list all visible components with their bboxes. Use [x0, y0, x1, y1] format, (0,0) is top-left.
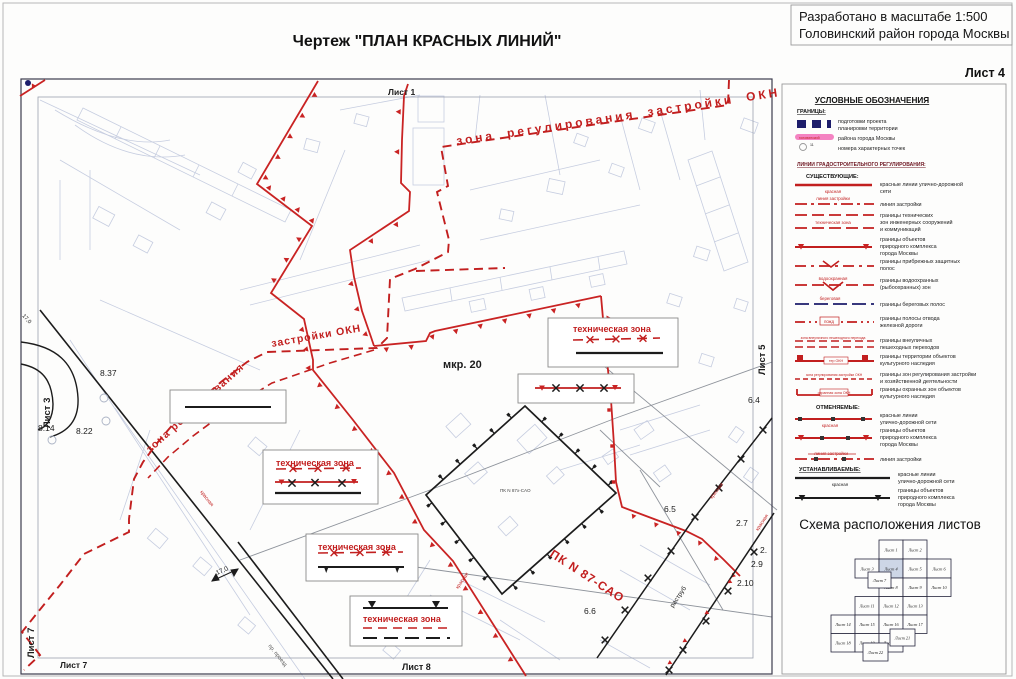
svg-text:границы технических: границы технических [880, 213, 933, 219]
svg-text:Лист 2: Лист 2 [907, 547, 922, 552]
svg-text:УСЛОВНЫЕ ОБОЗНАЧЕНИЯ: УСЛОВНЫЕ ОБОЗНАЧЕНИЯ [815, 96, 929, 105]
svg-text:границы объектов: границы объектов [898, 488, 944, 494]
svg-text:Лист 4: Лист 4 [883, 566, 898, 571]
svg-text:города Москвы: города Москвы [898, 502, 936, 508]
svg-text:Лист 1: Лист 1 [883, 547, 897, 552]
svg-text:границы внеуличных: границы внеуличных [880, 338, 933, 344]
svg-text:зона регулирования застройки О: зона регулирования застройки ОКН [806, 373, 863, 377]
svg-text:города Москвы: города Москвы [880, 251, 918, 257]
svg-text:зона внеуличного пешеходного п: зона внеуличного пешеходного перехода [801, 336, 866, 340]
svg-text:Лист 13: Лист 13 [906, 604, 922, 609]
svg-text:границы водоохранных: границы водоохранных [880, 278, 939, 284]
svg-text:Лист 3: Лист 3 [859, 566, 873, 571]
svg-text:границы зон регулирования заст: границы зон регулирования застройки [880, 371, 976, 378]
svg-text:зон инженерных сооружений: зон инженерных сооружений [880, 219, 953, 226]
svg-text:головинский: головинский [799, 136, 820, 140]
svg-text:2.9: 2.9 [751, 559, 763, 569]
svg-text:2.7: 2.7 [736, 518, 748, 528]
svg-text:Лист 15: Лист 15 [858, 622, 875, 627]
svg-text:и хозяйственной деятельности: и хозяйственной деятельности [880, 378, 957, 385]
svg-text:Лист 3: Лист 3 [42, 398, 53, 428]
svg-text:ОТМЕНЯЕМЫЕ:: ОТМЕНЯЕМЫЕ: [816, 405, 860, 411]
svg-text:Лист 8: Лист 8 [402, 662, 431, 672]
svg-text:береговая: береговая [820, 296, 841, 301]
svg-text:красная: красная [822, 423, 839, 428]
svg-text:6.4: 6.4 [748, 395, 760, 405]
svg-text:8.37: 8.37 [100, 368, 117, 378]
svg-text:улично-дорожной сети: улично-дорожной сети [880, 419, 936, 426]
svg-text:подготовки проекта: подготовки проекта [838, 119, 887, 125]
svg-text:СУЩЕСТВУЮЩИЕ:: СУЩЕСТВУЮЩИЕ: [806, 174, 859, 180]
svg-text:границы охранных зон объектов: границы охранных зон объектов [880, 387, 961, 393]
svg-text:планировки территории: планировки территории [838, 126, 898, 132]
svg-text:Лист 14: Лист 14 [834, 622, 851, 627]
svg-text:Лист 6: Лист 6 [931, 566, 946, 571]
svg-text:красные линии: красные линии [880, 413, 918, 419]
svg-text:Лист 18: Лист 18 [834, 641, 851, 646]
svg-text:мкр. 20: мкр. 20 [443, 359, 482, 371]
svg-text:красные линии улично-дорожной: красные линии улично-дорожной [880, 181, 963, 188]
svg-text:Разработано в масштабе 1:500: Разработано в масштабе 1:500 [799, 9, 988, 24]
svg-text:района города Москвы: района города Москвы [838, 135, 895, 142]
svg-text:11: 11 [810, 143, 814, 147]
svg-text:6.6: 6.6 [584, 606, 596, 616]
svg-text:техническая зона: техническая зона [573, 324, 652, 334]
svg-text:улично-дорожной сети: улично-дорожной сети [898, 478, 954, 485]
svg-text:границы территории объектов: границы территории объектов [880, 354, 956, 360]
svg-text:пожд: пожд [824, 319, 834, 324]
svg-text:границы береговых полос: границы береговых полос [880, 302, 945, 308]
svg-text:границы полосы отвода: границы полосы отвода [880, 316, 940, 322]
svg-text:ПК N 87х-САО: ПК N 87х-САО [500, 488, 531, 493]
svg-text:охранная зона ОКН: охранная зона ОКН [818, 391, 851, 395]
svg-text:линия застройки: линия застройки [880, 456, 922, 463]
svg-text:тер ОКН: тер ОКН [829, 359, 843, 363]
svg-text:Лист 21: Лист 21 [894, 635, 910, 640]
svg-text:Лист 22: Лист 22 [867, 650, 884, 655]
svg-text:Лист 4: Лист 4 [965, 66, 1005, 80]
svg-text:Лист 5: Лист 5 [757, 344, 768, 375]
svg-text:железной дороги: железной дороги [880, 322, 923, 329]
svg-text:Лист 7: Лист 7 [872, 578, 887, 583]
svg-text:природного комплекса: природного комплекса [880, 435, 937, 441]
svg-text:2.10: 2.10 [737, 578, 754, 588]
svg-text:границы объектов: границы объектов [880, 428, 926, 434]
svg-text:Чертеж "ПЛАН КРАСНЫХ ЛИНИЙ": Чертеж "ПЛАН КРАСНЫХ ЛИНИЙ" [293, 31, 562, 50]
svg-text:2.: 2. [760, 545, 767, 555]
svg-text:границы прибрежных защитных: границы прибрежных защитных [880, 259, 960, 265]
svg-text:культурного наследия: культурного наследия [880, 394, 935, 400]
svg-text:Лист 11: Лист 11 [858, 604, 874, 609]
svg-text:техническая зона: техническая зона [363, 614, 442, 624]
svg-text:6.5: 6.5 [664, 504, 676, 514]
svg-text:Лист 7: Лист 7 [26, 628, 37, 658]
svg-text:техническая зона: техническая зона [815, 220, 851, 225]
svg-text:природного комплекса: природного комплекса [898, 495, 955, 501]
svg-text:полос: полос [880, 266, 895, 272]
svg-text:номера характерных точек: номера характерных точек [838, 146, 906, 152]
svg-text:Лист 1: Лист 1 [388, 87, 415, 97]
svg-text:природного комплекса: природного комплекса [880, 244, 937, 250]
svg-text:ЛИНИИ ГРАДОСТРОИТЕЛЬНОГО РЕГУЛ: ЛИНИИ ГРАДОСТРОИТЕЛЬНОГО РЕГУЛИРОВАНИЯ: [797, 162, 926, 168]
svg-text:сети: сети [880, 189, 891, 195]
svg-text:Лист 17: Лист 17 [906, 622, 923, 627]
svg-text:красная: красная [825, 189, 842, 194]
svg-text:культурного наследия: культурного наследия [880, 361, 935, 367]
svg-text:Лист 5: Лист 5 [907, 566, 922, 571]
svg-text:ГРАНИЦЫ:: ГРАНИЦЫ: [797, 109, 826, 115]
svg-text:пешеходных переходов: пешеходных переходов [880, 345, 939, 351]
svg-text:8.22: 8.22 [76, 426, 93, 436]
svg-text:Лист 12: Лист 12 [882, 604, 899, 609]
svg-text:водоохранная: водоохранная [819, 276, 848, 281]
svg-text:линия застройки: линия застройки [814, 451, 848, 456]
svg-text:Лист 7: Лист 7 [60, 660, 87, 670]
svg-text:границы объектов: границы объектов [880, 237, 926, 243]
svg-text:линия застройки: линия застройки [816, 196, 850, 201]
svg-text:(рыбоохранных) зон: (рыбоохранных) зон [880, 285, 931, 291]
svg-text:и коммуникаций: и коммуникаций [880, 226, 921, 233]
svg-text:Лист 16: Лист 16 [882, 622, 899, 627]
svg-text:линия застройки: линия застройки [880, 201, 922, 208]
svg-text:города Москвы: города Москвы [880, 442, 918, 448]
svg-text:УСТАНАВЛИВАЕМЫЕ:: УСТАНАВЛИВАЕМЫЕ: [799, 467, 861, 473]
svg-text:Лист 9: Лист 9 [907, 585, 922, 590]
svg-text:красная: красная [832, 482, 849, 487]
svg-text:Головинский район города Москв: Головинский район города Москвы [799, 26, 1009, 41]
svg-text:Лист 10: Лист 10 [930, 585, 947, 590]
svg-text:красные линии: красные линии [898, 472, 936, 478]
svg-text:Схема расположения листов: Схема расположения листов [799, 517, 981, 532]
